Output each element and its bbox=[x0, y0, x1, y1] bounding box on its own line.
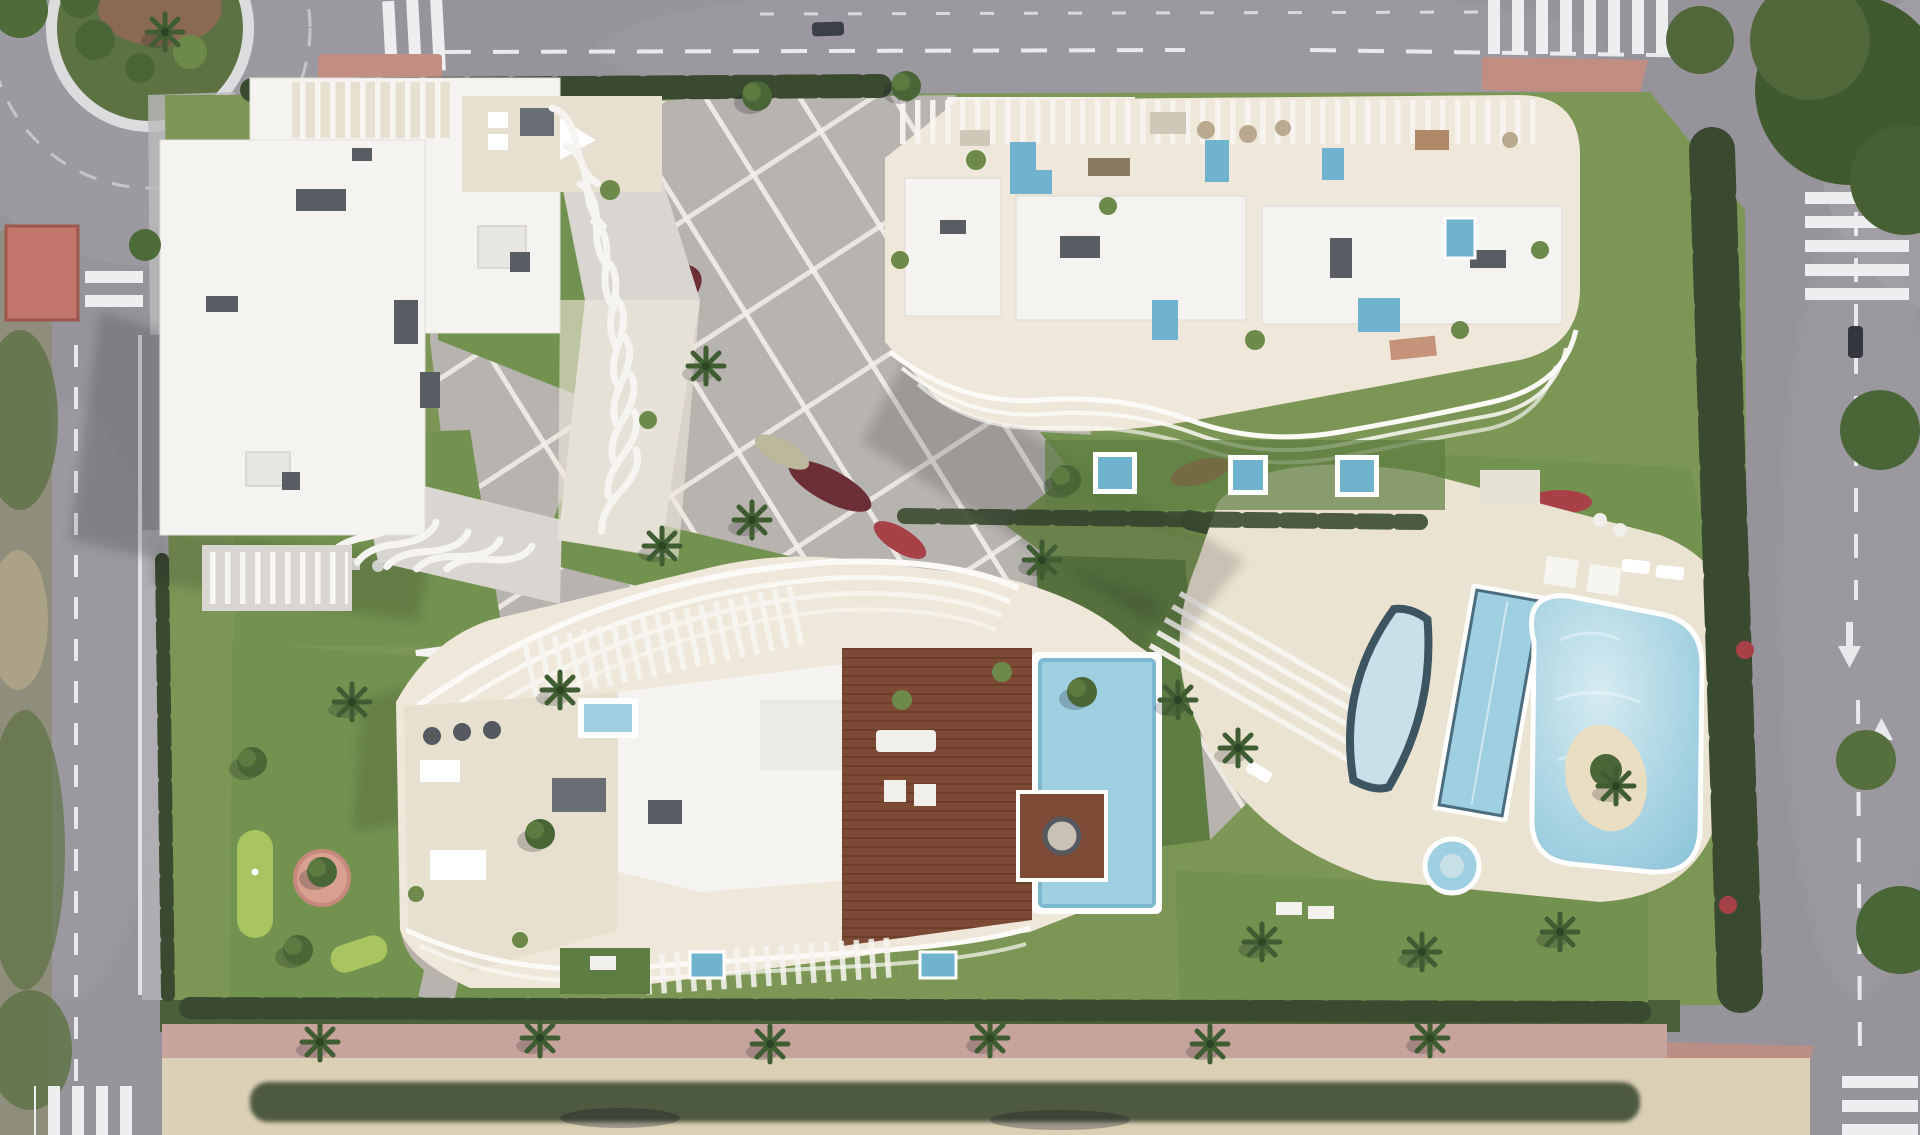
hedge-bottom bbox=[190, 1008, 1640, 1012]
south-plunge-pool bbox=[584, 704, 632, 732]
south-west-terrace bbox=[404, 692, 638, 972]
deck-sofa bbox=[876, 730, 936, 752]
crosswalk-top-east bbox=[1488, 0, 1674, 54]
site-plan-canvas bbox=[0, 0, 1920, 1135]
putting-green-lane bbox=[237, 830, 273, 938]
ne-roof-core-east bbox=[1262, 206, 1562, 324]
red-roof-building bbox=[6, 226, 78, 320]
ground-plunge-pool bbox=[1233, 460, 1263, 490]
ne-roof-core-center bbox=[1016, 196, 1246, 320]
aerial-site-render bbox=[0, 0, 1920, 1135]
crosswalk-right-lower bbox=[1842, 1073, 1918, 1135]
rooftop-deck bbox=[842, 648, 1032, 946]
car-right-road bbox=[1848, 326, 1863, 358]
promenade-hedge-row bbox=[250, 1082, 1640, 1122]
hedge-west bbox=[162, 560, 168, 995]
ground-plunge-pool bbox=[1340, 460, 1374, 492]
sun-umbrella bbox=[1586, 564, 1622, 596]
crosswalk-left-roundabout bbox=[85, 261, 143, 319]
south-dining-set bbox=[552, 778, 606, 812]
island-firepit bbox=[1045, 819, 1079, 853]
car-top-road bbox=[812, 21, 844, 36]
hedge-right bbox=[1712, 150, 1740, 990]
red-sidewalk-top-east bbox=[1482, 57, 1648, 94]
crosswalk-bottom-west bbox=[34, 1086, 138, 1135]
sun-umbrella bbox=[1543, 556, 1579, 588]
lagoon-pool bbox=[1532, 596, 1703, 872]
ne-roof-core-west bbox=[905, 178, 1001, 316]
ground-plunge-pool bbox=[1098, 457, 1132, 489]
